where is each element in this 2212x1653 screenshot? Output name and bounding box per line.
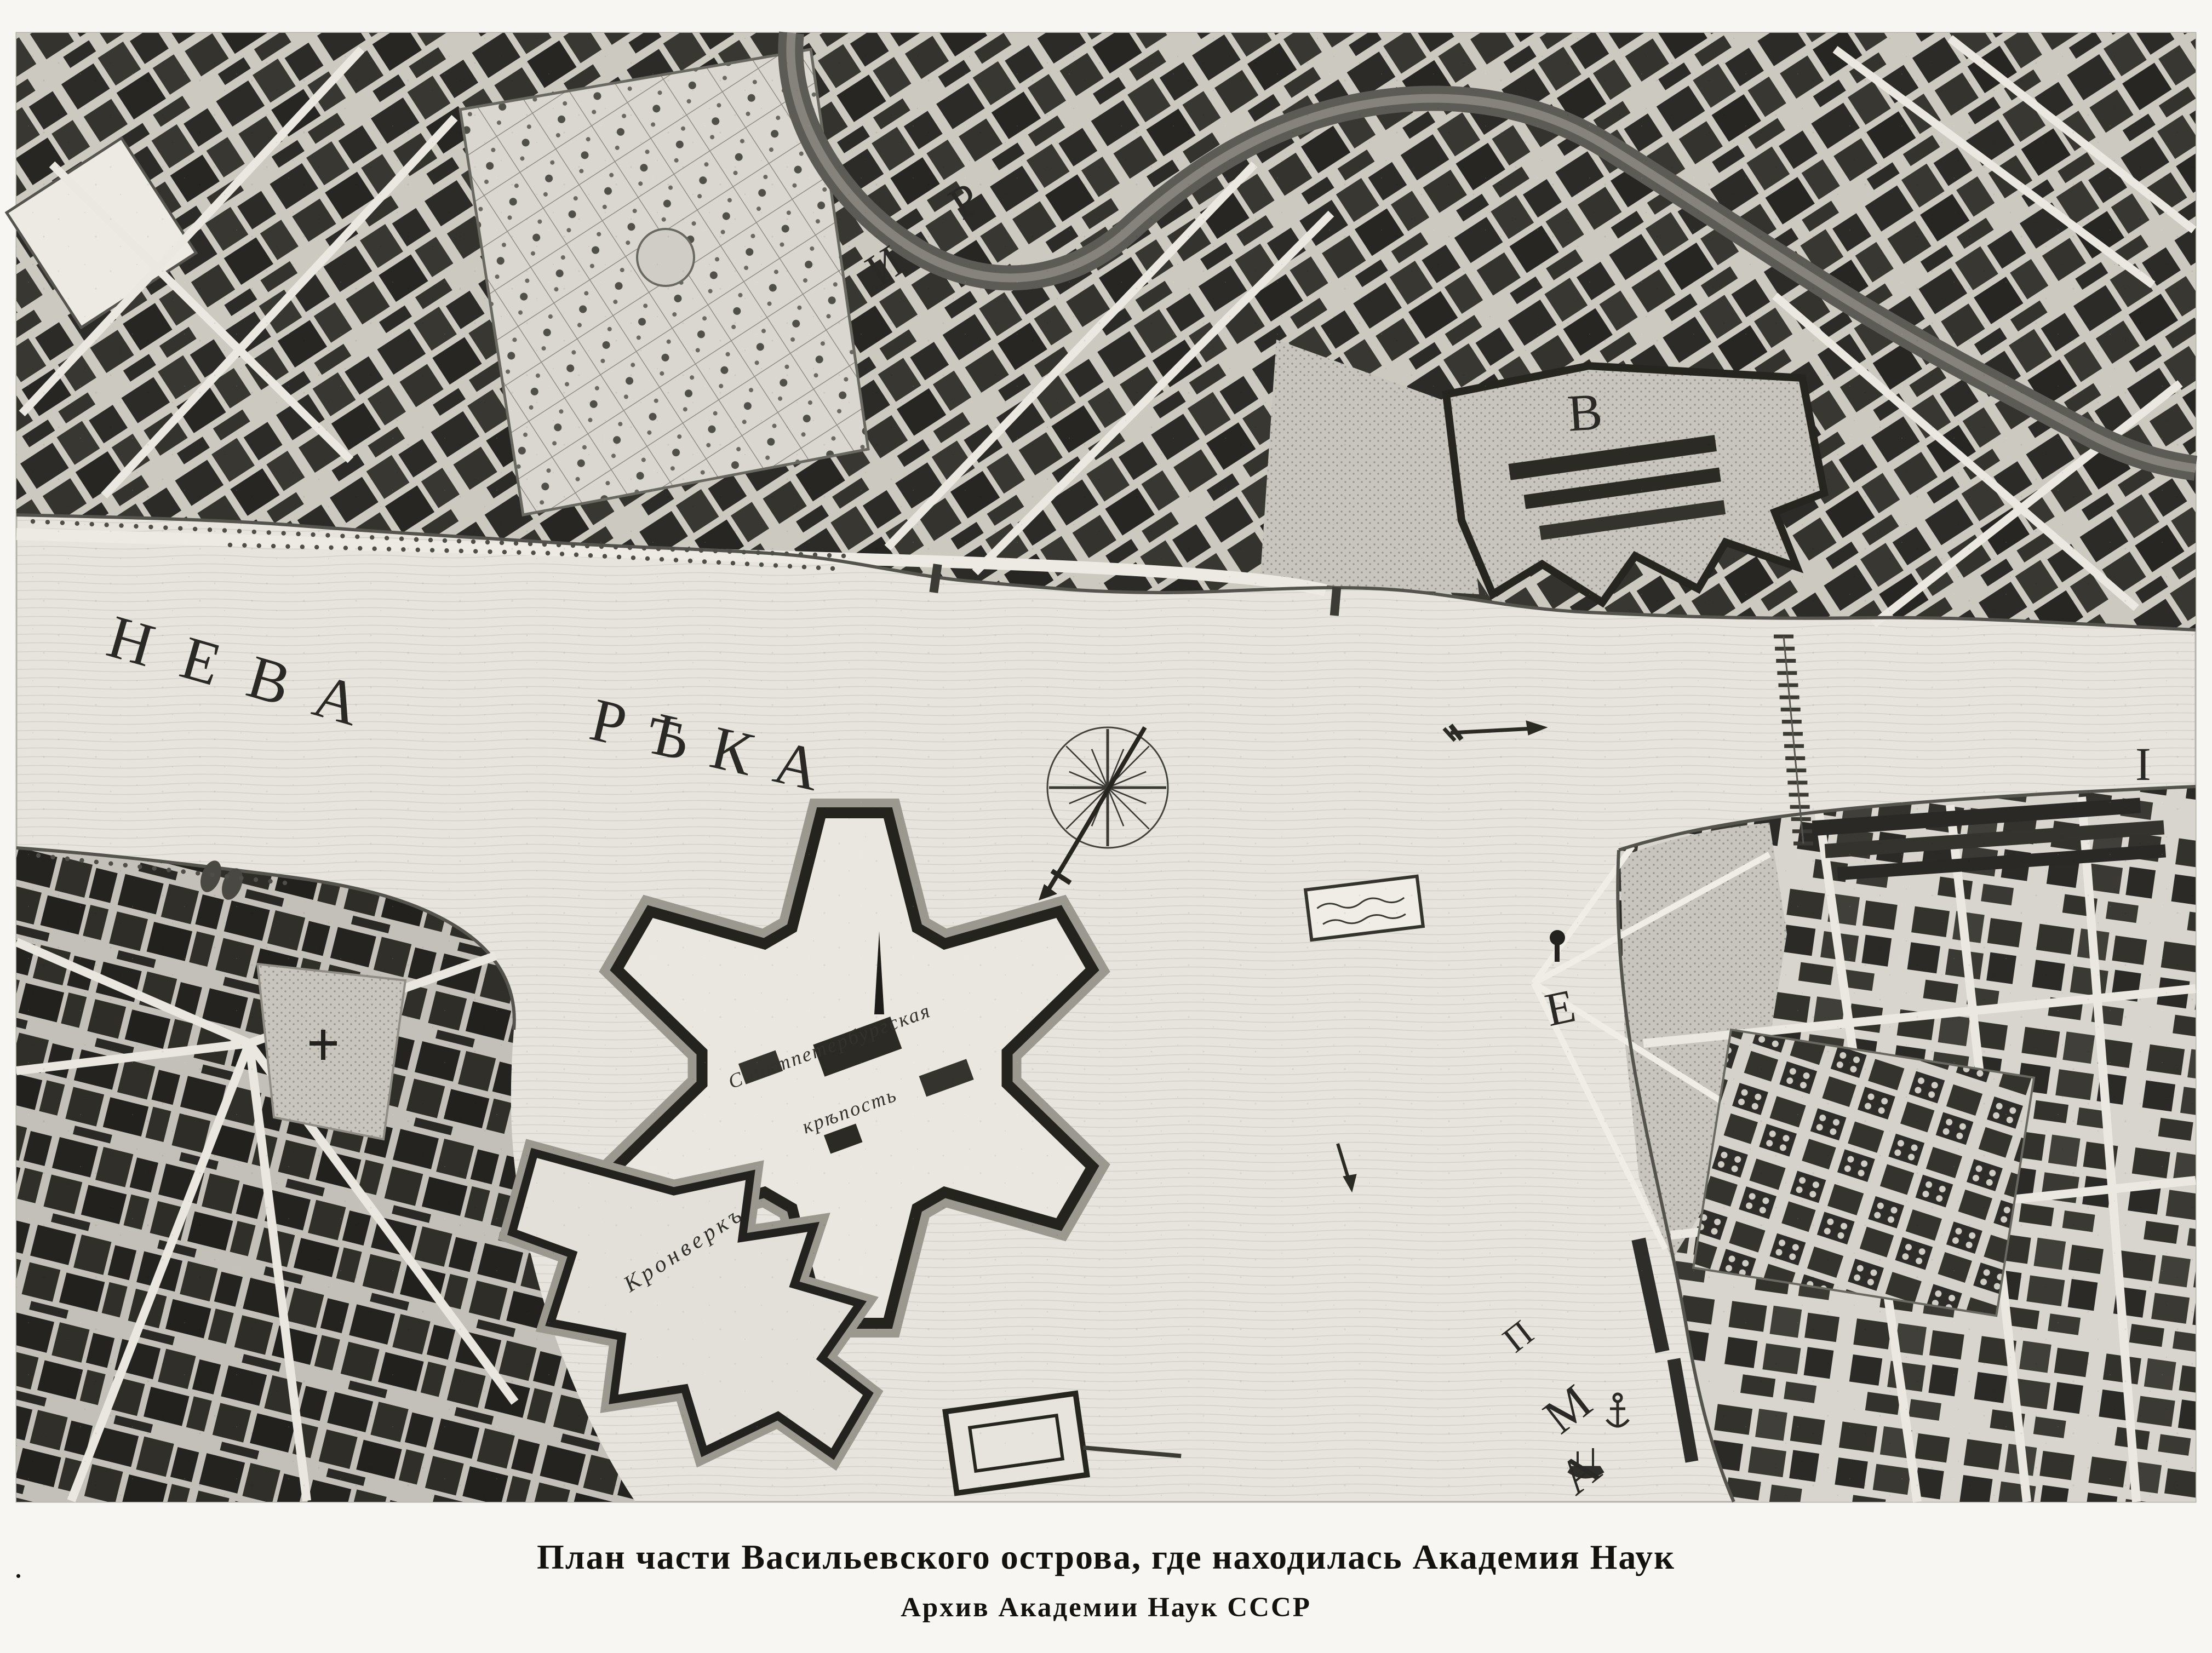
figure-credit: Архив Академии Наук СССР <box>0 1592 2212 1623</box>
historic-city-plan: НЕВА РѢКА В Е I П М А И Р Кронверкъ Санк… <box>0 0 2212 1653</box>
scanned-map-page: НЕВА РѢКА В Е I П М А И Р Кронверкъ Санк… <box>0 0 2212 1653</box>
figure-caption: План части Васильевского острова, где на… <box>0 1537 2212 1577</box>
scan-noise <box>16 33 2196 1502</box>
stray-ink-mark: . <box>14 1548 22 1586</box>
